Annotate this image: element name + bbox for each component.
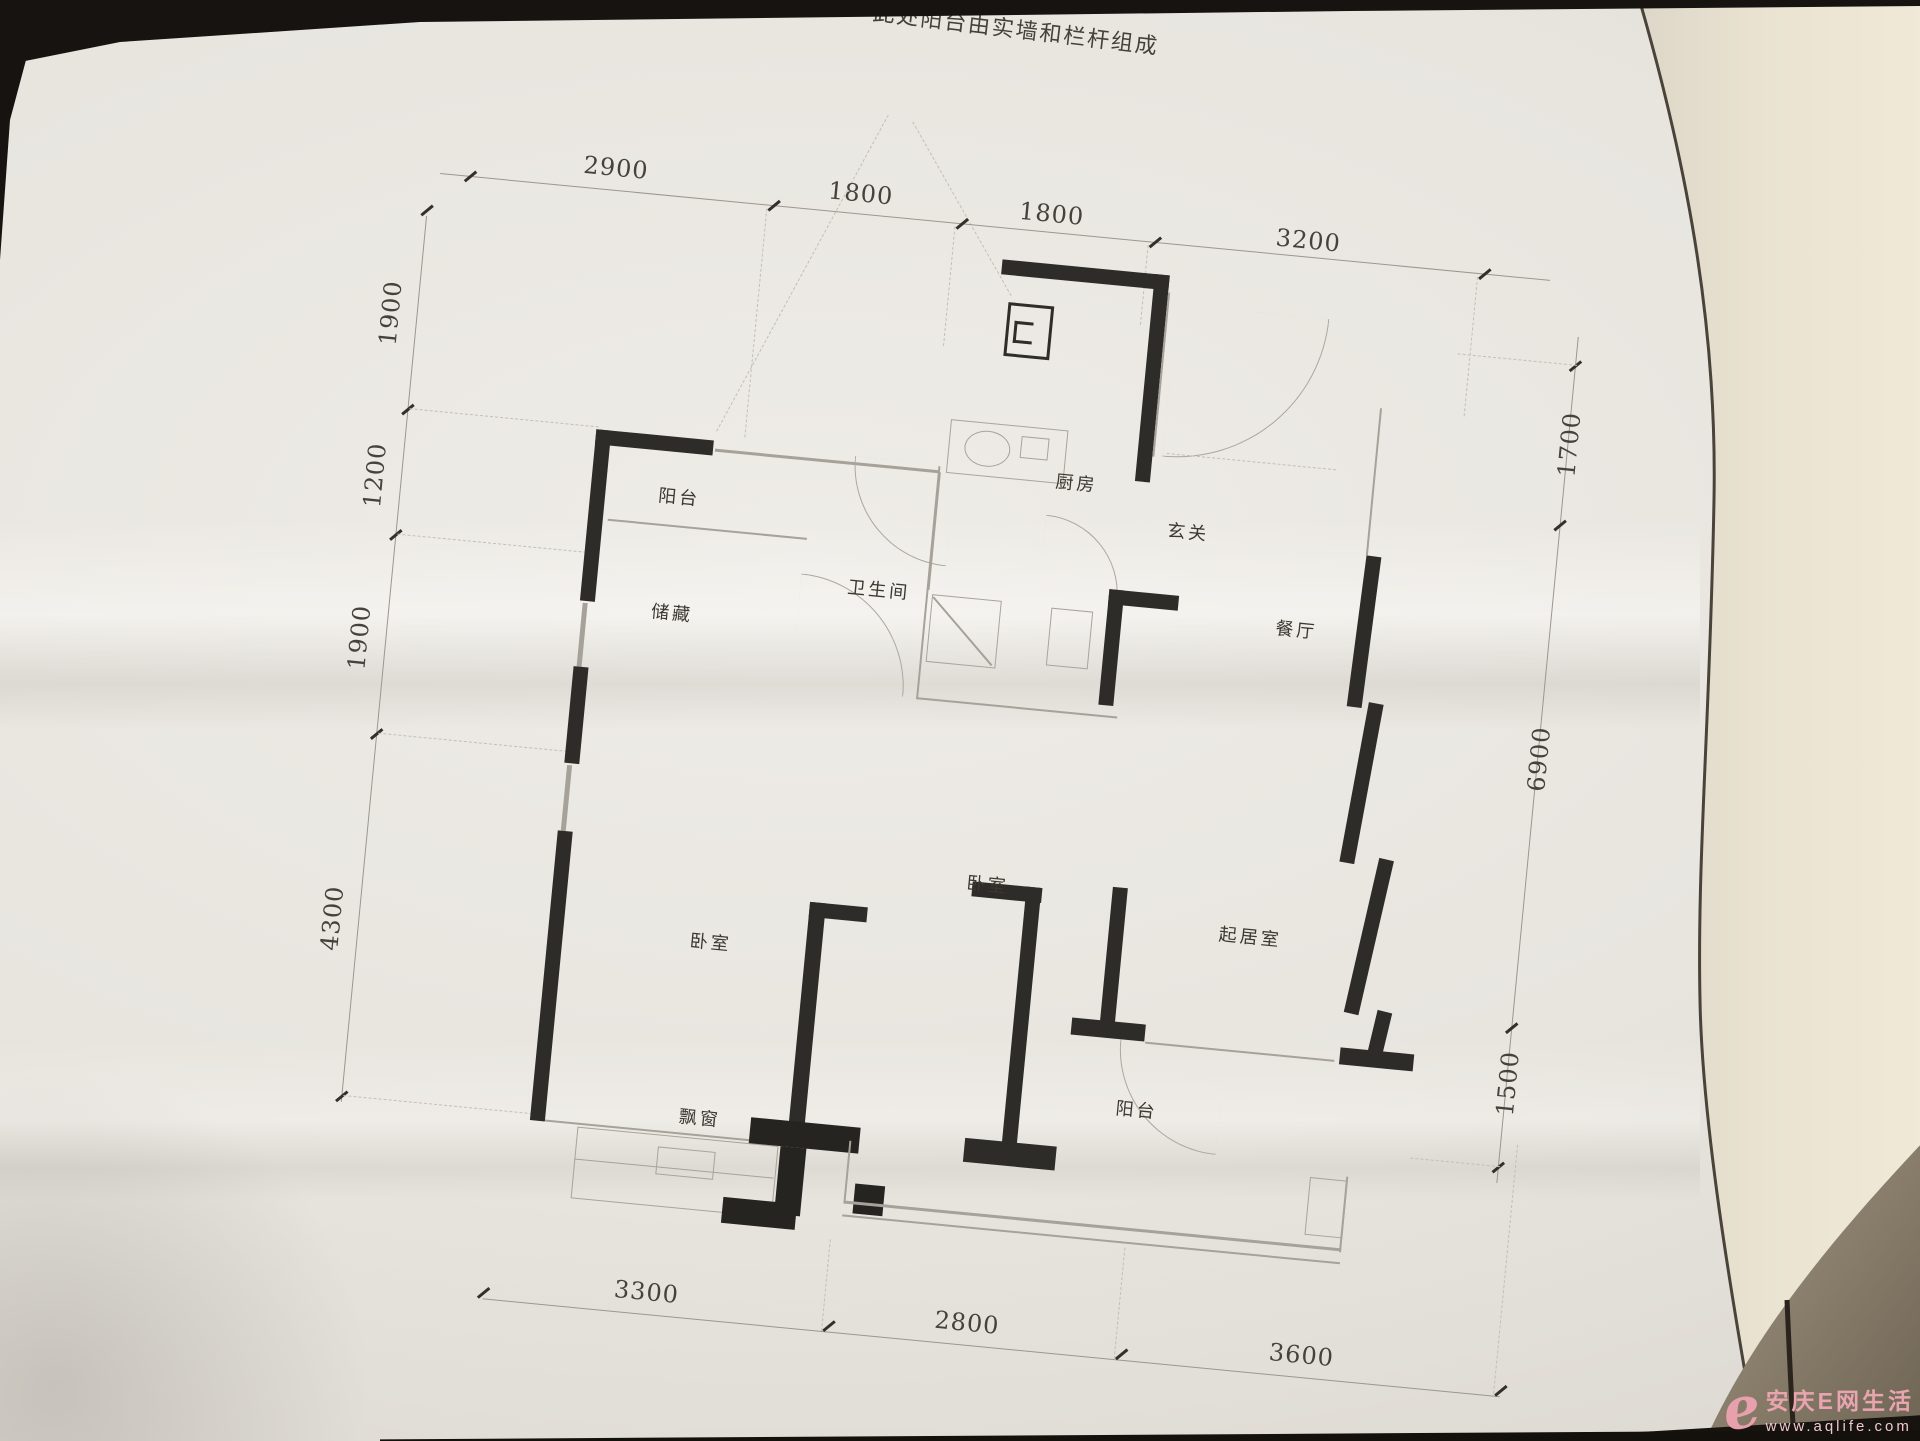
watermark: e 安庆E网生活 www.aqlife.com	[1723, 1379, 1914, 1437]
watermark-text: 安庆E网生活 www.aqlife.com	[1766, 1382, 1914, 1435]
floorplan-photo: 此处阳台由实墙和栏杆组成 2900 1800 1800 3200 1900 12…	[0, 0, 1920, 1441]
aqlife-logo-icon: e	[1719, 1377, 1764, 1440]
paper-edge-graphic	[0, 0, 1920, 1441]
watermark-url: www.aqlife.com	[1766, 1418, 1914, 1435]
watermark-brand: 安庆E网生活	[1766, 1382, 1914, 1416]
